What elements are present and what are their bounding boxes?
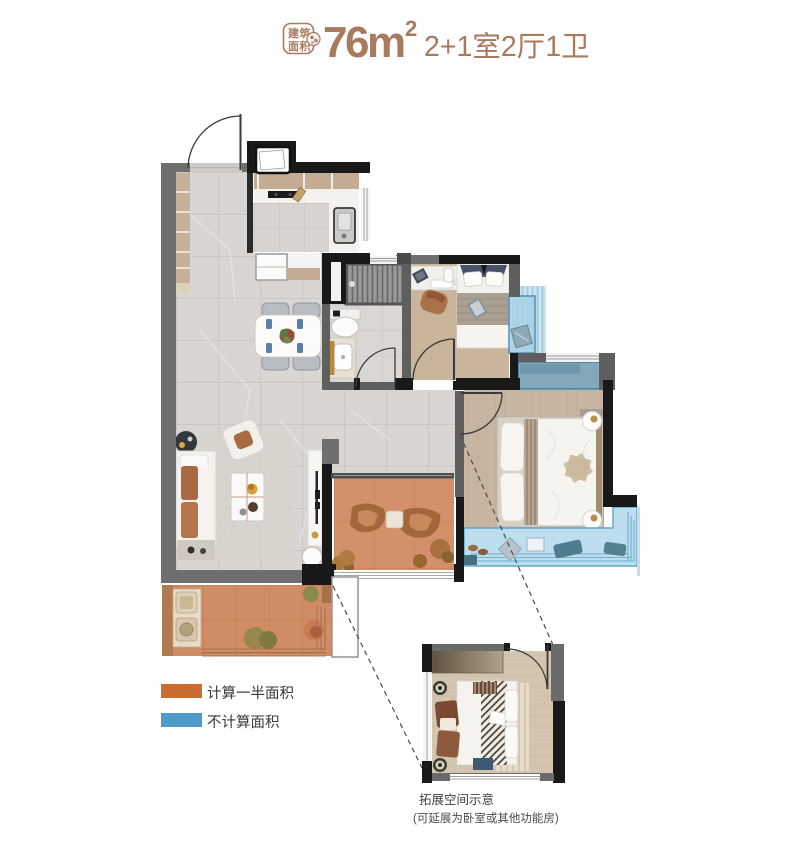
svg-text:2+1室2厅1卫: 2+1室2厅1卫 (424, 31, 590, 63)
svg-text:(可延展为卧室或其他功能房): (可延展为卧室或其他功能房) (413, 811, 559, 825)
svg-text:2: 2 (405, 16, 417, 41)
svg-text:76m: 76m (323, 18, 404, 67)
svg-text:不计算面积: 不计算面积 (207, 714, 280, 731)
svg-text:计算一半面积: 计算一半面积 (207, 685, 294, 702)
svg-text:拓展空间示意: 拓展空间示意 (419, 792, 494, 807)
